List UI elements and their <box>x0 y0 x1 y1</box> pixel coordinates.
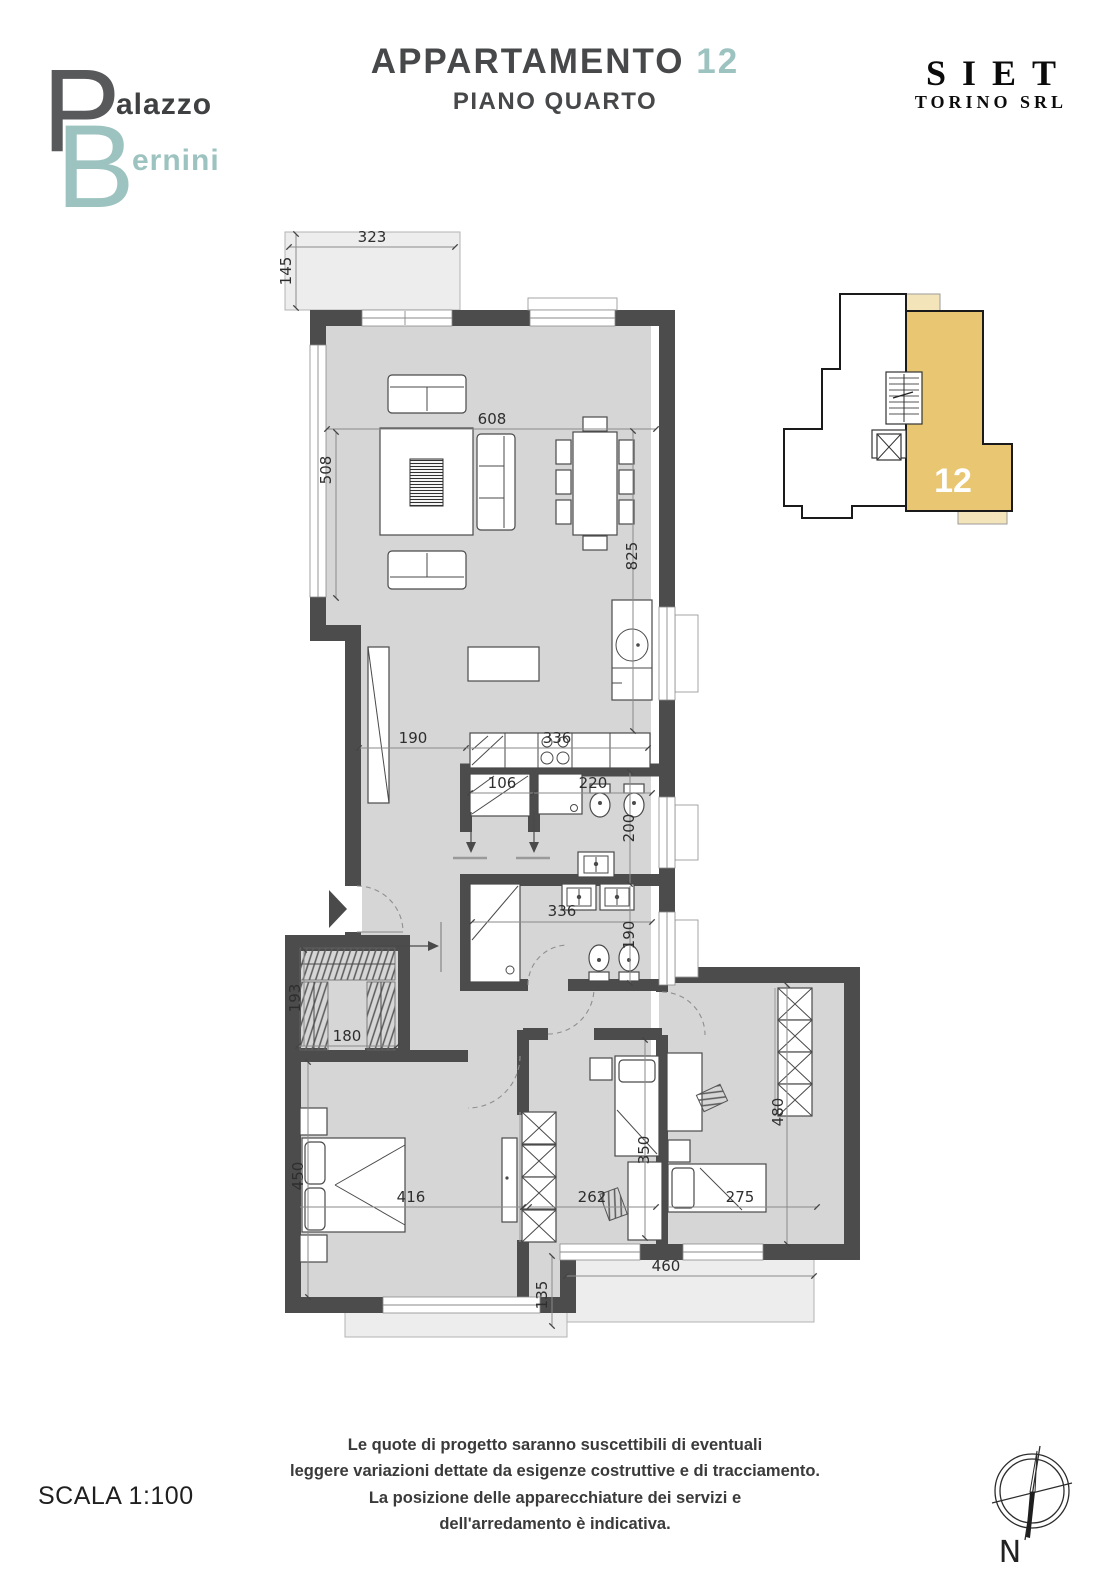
toilet <box>624 784 644 817</box>
dim-balcony-top-width: 323 <box>358 228 387 246</box>
dim-balcony-top-depth: 145 <box>277 257 295 286</box>
nightstand <box>300 1108 327 1135</box>
key-plan-unit-label: 12 <box>934 462 972 500</box>
disclaimer-line-2: leggere variazioni dettate da esigenze c… <box>290 1462 820 1480</box>
dim-living-width: 608 <box>478 410 507 428</box>
sofa <box>477 434 515 530</box>
washing-machine <box>538 774 582 814</box>
dim-living-height-left: 508 <box>317 456 335 485</box>
nightstand <box>668 1140 690 1162</box>
scale-label: SCALA 1:100 <box>38 1482 194 1511</box>
disclaimer-line-3: La posizione delle apparecchiature dei s… <box>369 1489 741 1507</box>
dim-bedroom1-height: 450 <box>289 1162 307 1191</box>
tv <box>410 459 443 506</box>
dim-bath1-closet: 106 <box>488 774 517 792</box>
dim-kitchen-left: 190 <box>399 729 428 747</box>
dim-bedroom3-width: 275 <box>726 1188 755 1206</box>
nightstand <box>590 1058 612 1080</box>
kitchen-island <box>468 647 539 681</box>
dim-closet-height: 193 <box>286 984 304 1013</box>
dim-bedroom2-height: 350 <box>635 1136 653 1165</box>
dim-balcony-bottom-depth: 135 <box>533 1281 551 1310</box>
elevator-icon <box>877 434 901 460</box>
floorplan-sheet: P alazzo B ernini APPARTAMENTO 12 PIANO … <box>0 0 1110 1570</box>
disclaimer-line-1: Le quote di progetto saranno suscettibil… <box>348 1436 762 1454</box>
stairwell-icon <box>886 372 922 424</box>
dresser <box>502 1138 517 1222</box>
floor-plan-drawing: 323 145 608 508 825 190 336 106 220 200 … <box>0 0 1110 1570</box>
kitchen-sink-counter <box>612 600 652 700</box>
dim-bedroom2-width: 262 <box>578 1188 607 1206</box>
dim-bath2-height: 190 <box>620 921 638 950</box>
dim-balcony-bottom-width: 460 <box>652 1257 681 1275</box>
dim-bath1-width: 220 <box>579 774 608 792</box>
dim-kitchen-width: 336 <box>543 729 572 747</box>
wardrobe <box>520 1112 556 1242</box>
dim-bath2-width: 336 <box>548 902 577 920</box>
key-plan: 12 <box>784 294 1012 524</box>
bidet <box>619 945 639 981</box>
dim-bedroom1-width: 416 <box>397 1188 426 1206</box>
dim-closet-width: 180 <box>333 1027 362 1045</box>
toilet <box>589 945 609 981</box>
dim-bath1-height: 200 <box>620 814 638 843</box>
disclaimer-line-4: dell'arredamento è indicativa. <box>439 1515 670 1533</box>
shower <box>470 884 520 982</box>
desk <box>667 1053 702 1131</box>
wardrobe <box>775 988 812 1116</box>
nightstand <box>300 1235 327 1262</box>
compass-n-label: N <box>999 1535 1021 1570</box>
dim-living-height-right: 825 <box>623 542 641 571</box>
sink-vanity <box>578 852 614 877</box>
dim-bedroom3-height: 480 <box>769 1098 787 1127</box>
